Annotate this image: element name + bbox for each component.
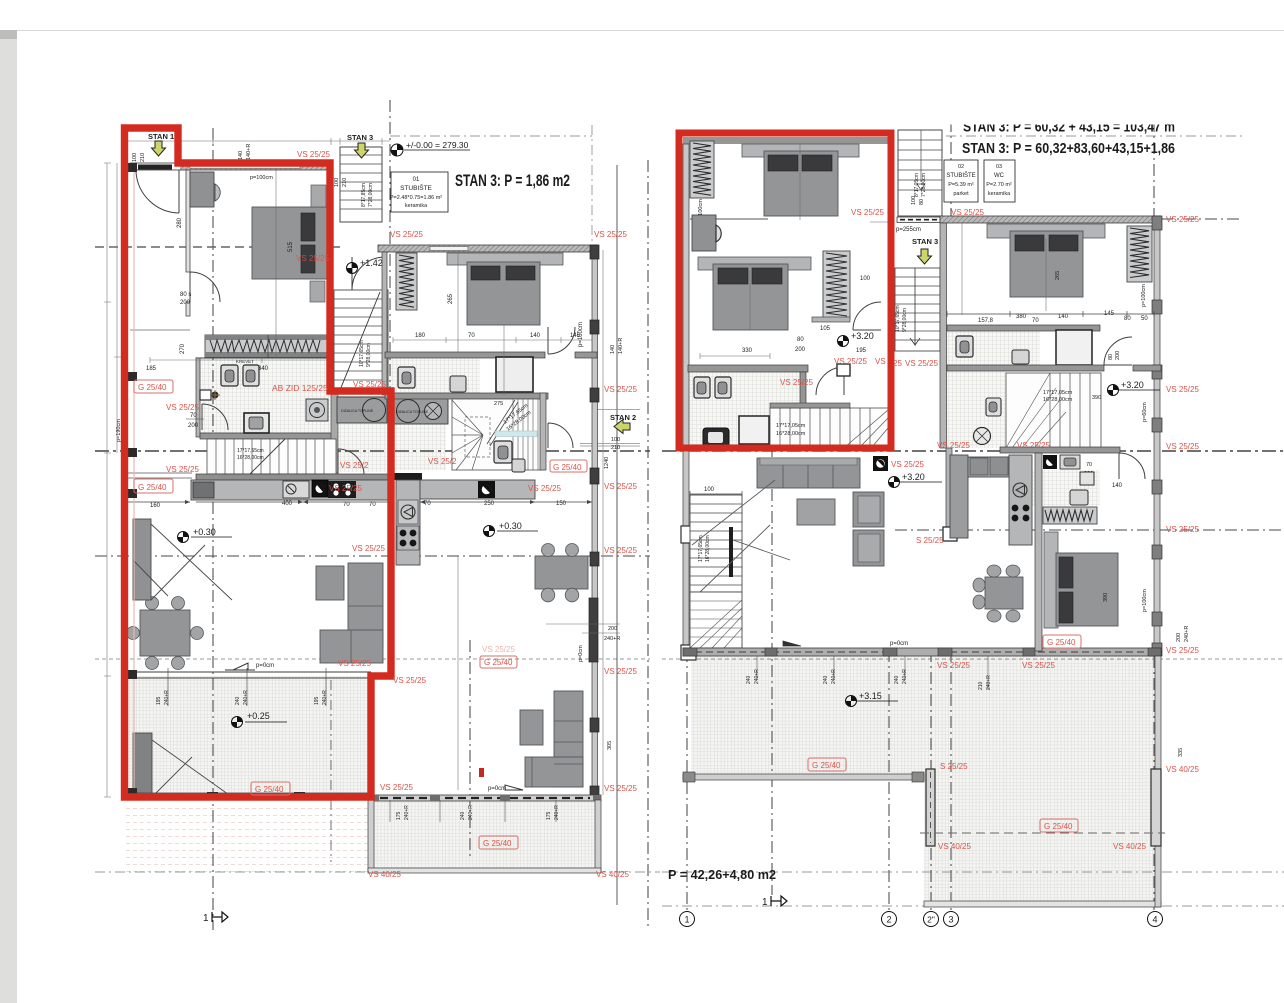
svg-text:VS 25/25: VS 25/25 (393, 676, 426, 685)
svg-text:VS 25/25: VS 25/25 (166, 465, 199, 474)
svg-text:VS 25/25: VS 25/25 (1166, 215, 1199, 224)
svg-text:2: 2 (886, 915, 891, 925)
svg-text:390: 390 (1103, 593, 1109, 602)
svg-text:VS 25/25: VS 25/25 (528, 484, 561, 493)
svg-text:VS 25/25: VS 25/25 (937, 661, 970, 670)
svg-text:VS 25/25: VS 25/25 (604, 385, 637, 394)
svg-text:01: 01 (413, 177, 420, 183)
svg-text:16*28,00cm: 16*28,00cm (237, 455, 264, 461)
svg-text:275: 275 (494, 401, 503, 407)
svg-text:140: 140 (1058, 314, 1069, 320)
svg-text:VS: VS (875, 357, 886, 366)
svg-text:G 25/40: G 25/40 (255, 785, 284, 794)
svg-text:240+R: 240+R (754, 669, 760, 684)
svg-text:VS 25/25: VS 25/25 (604, 667, 637, 676)
svg-text:240+R: 240+R (322, 690, 328, 705)
svg-text:240+R: 240+R (243, 690, 249, 705)
svg-text:140+R: 140+R (246, 144, 252, 160)
svg-text:9*28,00cm: 9*28,00cm (366, 343, 372, 367)
svg-text:VS 25/25: VS 25/25 (1166, 646, 1199, 655)
svg-text:8*17,05cm: 8*17,05cm (914, 173, 920, 197)
svg-text:240+R: 240+R (404, 805, 410, 820)
svg-text:S 25/25: S 25/25 (940, 762, 968, 771)
svg-text:240: 240 (235, 696, 241, 705)
svg-text:VS 25/25: VS 25/25 (380, 783, 413, 792)
svg-text:VS 25/25: VS 25/25 (851, 208, 884, 217)
svg-text:p=100cm: p=100cm (250, 175, 273, 181)
svg-text:380: 380 (1016, 314, 1027, 320)
svg-text:VS 40/25: VS 40/25 (938, 842, 971, 851)
svg-text:P=2.70 m²: P=2.70 m² (986, 182, 1012, 188)
svg-text:195: 195 (856, 348, 867, 354)
svg-text:80: 80 (919, 199, 925, 205)
svg-text:100: 100 (334, 178, 340, 187)
svg-text:17*17,05cm: 17*17,05cm (776, 423, 806, 429)
svg-text:VS 25/25: VS 25/25 (594, 230, 627, 239)
svg-text:P=5.39 m²: P=5.39 m² (948, 182, 974, 188)
svg-text:VS 25/25: VS 25/25 (390, 230, 423, 239)
svg-text:80: 80 (1108, 354, 1114, 360)
svg-text:240+R: 240+R (902, 669, 908, 684)
svg-text:140: 140 (610, 345, 616, 354)
svg-text:180: 180 (415, 333, 426, 339)
svg-text:80: 80 (1124, 316, 1131, 322)
svg-text:+1.42: +1.42 (360, 258, 383, 268)
svg-text:200: 200 (188, 423, 199, 429)
svg-text:G 25/40: G 25/40 (484, 658, 513, 667)
svg-text:175: 175 (396, 811, 402, 820)
svg-text:STUBIŠTE: STUBIŠTE (400, 183, 432, 192)
svg-text:105: 105 (820, 326, 831, 332)
svg-text:G 25/40: G 25/40 (138, 383, 167, 392)
svg-text:P = 42,26+4,80 m2: P = 42,26+4,80 m2 (668, 867, 776, 882)
svg-text:7*28,00cm: 7*28,00cm (368, 183, 374, 207)
svg-text:210: 210 (978, 681, 984, 690)
svg-text:VS 25/25: VS 25/25 (1166, 385, 1199, 394)
svg-text:17*17,05cm: 17*17,05cm (1043, 390, 1073, 396)
svg-text:70: 70 (468, 333, 475, 339)
svg-text:VS 25/25: VS 25/25 (329, 484, 362, 493)
svg-text:10*17,65cm: 10*17,65cm (359, 340, 365, 367)
svg-text:390: 390 (1092, 395, 1101, 401)
svg-text:4: 4 (1152, 915, 1157, 925)
svg-text:STAN 3: P = 1,86 m2: STAN 3: P = 1,86 m2 (455, 171, 570, 190)
svg-text:keramika: keramika (405, 203, 428, 209)
svg-text:195: 195 (314, 696, 320, 705)
svg-text:DIZALICA TOPLINE: DIZALICA TOPLINE (396, 410, 429, 414)
svg-text:G 25/40: G 25/40 (483, 839, 512, 848)
svg-text:AB ZID 125/25: AB ZID 125/25 (272, 383, 328, 393)
svg-text:VS 25/25: VS 25/25 (296, 254, 329, 263)
svg-text:265: 265 (1055, 271, 1061, 280)
svg-text:02: 02 (958, 164, 964, 170)
svg-text:515: 515 (288, 241, 294, 252)
svg-text:VS 40/25: VS 40/25 (1113, 842, 1146, 851)
svg-text:240+R: 240+R (1184, 626, 1190, 642)
svg-text:3: 3 (948, 915, 953, 925)
svg-text:VS 25/25: VS 25/25 (297, 150, 330, 159)
svg-text:VS 25/25: VS 25/25 (1022, 661, 1055, 670)
svg-text:VS 40/25: VS 40/25 (596, 870, 629, 879)
svg-text:140: 140 (530, 333, 541, 339)
svg-text:100: 100 (704, 487, 715, 493)
svg-text:p=255cm: p=255cm (896, 227, 921, 233)
svg-text:210: 210 (140, 153, 146, 162)
svg-text:335: 335 (1178, 748, 1184, 757)
svg-text:03: 03 (996, 164, 1002, 170)
svg-text:+3.20: +3.20 (902, 472, 925, 482)
svg-text:G 25/40: G 25/40 (1047, 638, 1076, 647)
svg-text:70: 70 (1086, 462, 1092, 468)
svg-text:S 25/25: S 25/25 (916, 536, 944, 545)
svg-text:16*28,00cm: 16*28,00cm (1043, 397, 1073, 403)
svg-text:140: 140 (238, 151, 244, 160)
svg-text:VS 25/25: VS 25/25 (482, 645, 515, 654)
svg-text:p=100cm: p=100cm (1141, 284, 1147, 307)
svg-text:+0.25: +0.25 (247, 711, 270, 721)
svg-text:210: 210 (342, 178, 348, 187)
svg-text:VS 25/25: VS 25/25 (338, 659, 371, 668)
svg-text:280: 280 (177, 217, 183, 228)
svg-text:160: 160 (150, 503, 161, 509)
svg-text:G 25/40: G 25/40 (138, 483, 167, 492)
svg-text:140: 140 (1112, 483, 1123, 489)
svg-text:70: 70 (1032, 318, 1039, 324)
svg-text:80 s: 80 s (180, 292, 191, 298)
svg-text:p=60cm: p=60cm (1142, 402, 1148, 422)
svg-text:VS 25/25: VS 25/25 (1166, 525, 1199, 534)
svg-text:1: 1 (684, 915, 689, 925)
svg-text:DIZALICA TOPLINE: DIZALICA TOPLINE (341, 409, 374, 413)
svg-text:240+R: 240+R (986, 675, 992, 690)
svg-text:16*28,00cm: 16*28,00cm (776, 431, 806, 437)
svg-text:VS 25/25: VS 25/25 (166, 403, 199, 412)
svg-text:VS 25/25: VS 25/25 (604, 482, 637, 491)
svg-text:240: 240 (823, 675, 829, 684)
svg-text:p=0cm: p=0cm (578, 645, 584, 662)
svg-text:240+R: 240+R (164, 690, 170, 705)
svg-text:330: 330 (742, 348, 753, 354)
svg-text:200: 200 (180, 300, 191, 306)
svg-text:240+R: 240+R (831, 669, 837, 684)
svg-text:1: 1 (203, 913, 209, 924)
svg-text:240: 240 (894, 675, 900, 684)
svg-text:240+R: 240+R (468, 805, 474, 820)
svg-text:70: 70 (190, 413, 197, 419)
svg-text:keramika: keramika (988, 191, 1011, 197)
svg-text:240: 240 (460, 811, 466, 820)
svg-text:200: 200 (1115, 351, 1121, 360)
svg-text:WC: WC (994, 173, 1005, 179)
svg-text:VS 25/2: VS 25/2 (428, 457, 457, 466)
svg-text:VS 40/25: VS 40/25 (368, 870, 401, 879)
svg-text:p=0cm: p=0cm (890, 641, 908, 647)
svg-text:p=100cm: p=100cm (1142, 589, 1148, 612)
svg-text:210: 210 (611, 445, 620, 451)
svg-text:+0.30: +0.30 (193, 527, 216, 537)
svg-text:100: 100 (911, 196, 917, 205)
svg-text:200: 200 (1176, 633, 1182, 642)
svg-text:80: 80 (797, 337, 804, 343)
svg-text:VS 25/25: VS 25/25 (604, 784, 637, 793)
svg-text:VS 25/25: VS 25/25 (780, 378, 813, 387)
svg-text:VS 25/2: VS 25/2 (340, 461, 369, 470)
svg-text:50: 50 (1141, 316, 1148, 322)
svg-text:VS 40/25: VS 40/25 (1166, 765, 1199, 774)
svg-text:+0.30: +0.30 (499, 521, 522, 531)
svg-text:G 25/40: G 25/40 (553, 463, 582, 472)
svg-text:VS 25/25: VS 25/25 (1017, 441, 1050, 450)
svg-text:STAN 3: STAN 3 (912, 237, 938, 246)
svg-text:100: 100 (611, 437, 620, 443)
svg-text:VS 25/25: VS 25/25 (937, 441, 970, 450)
svg-text:240+R: 240+R (604, 636, 620, 642)
svg-text:parket: parket (953, 191, 969, 197)
svg-text:p=0cm: p=0cm (488, 786, 506, 792)
svg-text:157,8: 157,8 (978, 318, 994, 324)
svg-text:200: 200 (795, 347, 806, 353)
svg-text:+3.20: +3.20 (1121, 380, 1144, 390)
svg-text:9*28,00cm: 9*28,00cm (902, 308, 908, 332)
svg-text:265: 265 (448, 293, 454, 304)
svg-text:240+R: 240+R (554, 805, 560, 820)
svg-text:10*17,65cm: 10*17,65cm (895, 305, 901, 332)
svg-text:STAN 3: P = 60,32+83,60+43,15+: STAN 3: P = 60,32+83,60+43,15+1,86 (962, 140, 1175, 157)
svg-text:195: 195 (156, 696, 162, 705)
svg-text:1: 1 (762, 897, 768, 908)
svg-text:VS 25/25: VS 25/25 (353, 380, 386, 389)
svg-text:STAN 1: STAN 1 (148, 132, 174, 141)
svg-text:175: 175 (546, 811, 552, 820)
svg-text:STUBIŠTE: STUBIŠTE (946, 172, 975, 179)
svg-text:340: 340 (258, 366, 269, 372)
svg-text:7*28,00cm: 7*28,00cm (921, 173, 927, 197)
svg-text:200: 200 (608, 626, 617, 632)
svg-text:16*28,00cm: 16*28,00cm (705, 535, 711, 562)
svg-text:G 25/40: G 25/40 (812, 761, 841, 770)
svg-text:185: 185 (146, 366, 157, 372)
svg-text:VS 25/25: VS 25/25 (352, 544, 385, 553)
svg-text:100: 100 (860, 276, 871, 282)
svg-text:G 25/40: G 25/40 (1044, 822, 1073, 831)
svg-text:8*17,85cm: 8*17,85cm (361, 183, 367, 207)
svg-text:+3.20: +3.20 (851, 331, 874, 341)
svg-text:VS 25/25: VS 25/25 (1166, 442, 1199, 451)
svg-text:P=2.48*0.75=1.86 m²: P=2.48*0.75=1.86 m² (390, 195, 442, 201)
svg-text:2": 2" (927, 915, 935, 925)
svg-text:240: 240 (746, 675, 752, 684)
svg-text:100: 100 (132, 153, 138, 162)
svg-text:p=100cm: p=100cm (578, 322, 584, 347)
svg-text:25: 25 (893, 359, 902, 368)
svg-text:305: 305 (607, 741, 613, 750)
svg-text:VS 25/25: VS 25/25 (834, 357, 867, 366)
svg-text:VS 25/25: VS 25/25 (905, 359, 938, 368)
svg-text:70: 70 (369, 502, 376, 508)
svg-text:270: 270 (180, 343, 186, 354)
svg-text:+3.15: +3.15 (859, 691, 882, 701)
svg-text:+/-0.00 = 279.30: +/-0.00 = 279.30 (406, 140, 469, 150)
svg-text:1240: 1240 (604, 457, 610, 469)
svg-text:VS 25/25: VS 25/25 (604, 546, 637, 555)
svg-text:p=190cm: p=190cm (116, 419, 122, 442)
svg-text:140+R: 140+R (618, 338, 624, 354)
svg-text:VS 25/25: VS 25/25 (891, 460, 924, 469)
svg-text:STAN 3: STAN 3 (347, 133, 373, 142)
svg-text:17*17,65cm: 17*17,65cm (237, 448, 264, 454)
svg-text:70: 70 (343, 502, 350, 508)
svg-text:p=0cm: p=0cm (256, 663, 274, 669)
